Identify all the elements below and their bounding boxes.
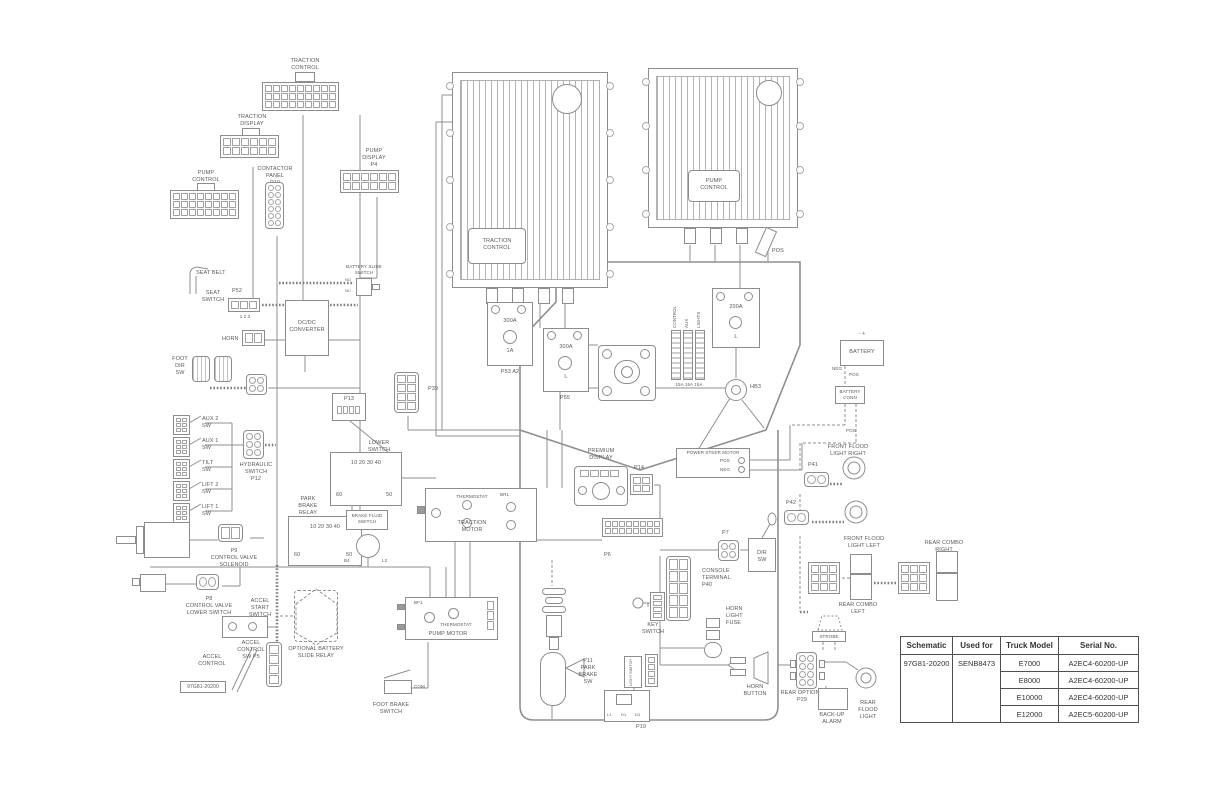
aux2-switch-label: AUX 2 SW (202, 416, 228, 430)
control-valve-solenoid-body (144, 522, 190, 558)
p39-connector (394, 372, 419, 413)
rear-combo-left-connector (808, 562, 840, 594)
horn-button-plug-1 (730, 657, 746, 664)
traction-motor-term-5 (506, 520, 516, 530)
p7-connector (718, 540, 739, 561)
col-schematic: Schematic (901, 637, 953, 655)
fuse200-center (729, 316, 742, 329)
battery-slide-no: NO (345, 277, 355, 282)
lower-relay-pins-top: 10 20 30 40 (334, 460, 398, 467)
p13-label: P13 (332, 396, 366, 403)
horn-fuse-cap-1 (706, 618, 720, 628)
dcdc-converter-label: DC/DC CONVERTER (287, 320, 327, 334)
traction-module-nameplate-text: TRACTION CONTROL (470, 238, 524, 252)
p1-tab (295, 72, 315, 82)
traction-motor-term-2 (462, 500, 472, 510)
horn-light-fuse-label: HORN LIGHT FUSE (726, 606, 752, 627)
rear-combo-left-lamp-top (850, 554, 872, 574)
tilt-switch-connector (173, 459, 190, 479)
col-truck-model: Truck Model (1001, 637, 1059, 655)
p19-l1: L1 (607, 712, 617, 717)
contactor-lug-3 (602, 386, 612, 396)
console-terminal-connector (666, 556, 691, 621)
p8-lower-switch-label: P8 CONTROL VALVE LOWER SWITCH (182, 596, 236, 617)
solenoid-stem (116, 536, 136, 544)
steer-pos-label: POS (720, 458, 734, 464)
rear-combo-right-lamp-bottom (936, 573, 958, 601)
pump-display-p4-connector (340, 170, 399, 193)
steer-pos-terminal (738, 457, 745, 464)
pump-module-nameplate-text: PUMP CONTROL (690, 178, 738, 192)
spec-table: Schematic Used for Truck Model Serial No… (900, 636, 1139, 723)
front-flood-left-label: FRONT FLOOD LIGHT LEFT (838, 536, 890, 550)
serial-1: A2EC4-60200-UP (1059, 655, 1139, 672)
traction-controller-cap (552, 84, 582, 114)
contactor-lug-2 (640, 349, 650, 359)
p8-connector (196, 574, 219, 590)
traction-left-mounts (446, 82, 454, 278)
pump-motor-term-2 (448, 608, 459, 619)
park-brake-insulator-2 (545, 597, 563, 604)
schematic-number: 97G81-20200 (901, 655, 953, 723)
lower-relay-pin50: 50 (386, 492, 398, 499)
park-brake-insulator-1 (542, 588, 566, 595)
light-switch-label: LIGHT SWITCH (629, 658, 633, 686)
lift2-switch-label: LIFT 2 SW (202, 482, 228, 496)
key-switch-label: KEY SWITCH (636, 622, 670, 636)
traction-motor-stub (417, 506, 425, 514)
p19-d2: D2 (635, 712, 645, 717)
rear-combo-right-lamp-top (936, 551, 958, 573)
p39-label: P39 (428, 386, 446, 393)
lift1-switch-connector (173, 503, 190, 523)
fuse1-lug-b (517, 305, 526, 314)
traction-display-p2-connector (220, 135, 279, 158)
battery-slide-nc: NC (345, 288, 355, 293)
pump-display-p4-label: PUMP DISPLAY P4 (350, 148, 398, 169)
brake-fluid-l2: L2 (382, 558, 394, 564)
pump-pos-label: POS (770, 248, 786, 255)
pump-controller-cap (756, 80, 782, 106)
fuse200-rating: 200A (712, 304, 760, 311)
fuse2-lug-a (547, 331, 556, 340)
console-terminal-label: CONSOLE TERMINAL P40 (702, 568, 742, 589)
aux-fuse-ratings: 15A 15A 15A (666, 382, 712, 388)
hydraulic-switch-connector (243, 430, 264, 459)
foot-dir-switch-label: FOOT DIR SW (168, 356, 192, 377)
accel-start-pin-a (228, 622, 237, 631)
serial-3: A2EC4-60200-UP (1059, 689, 1139, 706)
fuse2-id: L (543, 374, 589, 381)
park-brake-relay-label: PARK BRAKE RELAY (286, 496, 330, 517)
spec-header-row: Schematic Used for Truck Model Serial No… (901, 637, 1139, 655)
optional-battery-slide-relay (294, 590, 338, 642)
foot-brake-switch-label: FOOT BRAKE SWITCH (368, 702, 414, 716)
light-switch-connector (645, 654, 658, 687)
rear-combo-left-label: REAR COMBO LEFT (832, 602, 884, 616)
direction-switch-label: DIR SW (750, 550, 774, 564)
pump-right-mounts (796, 78, 804, 218)
fuse2-center (558, 356, 572, 370)
tilt-switch-label: TILT SW (202, 460, 228, 474)
foot-brake-com: COM (414, 684, 432, 690)
contactor-lug-4 (640, 386, 650, 396)
p19-label: P19 (636, 724, 652, 731)
p41-connector (804, 472, 829, 487)
traction-motor-label: TRACTION MOTOR (448, 520, 496, 534)
seat-belt-label: SEAT BELT (196, 270, 230, 277)
pump-lug-3 (736, 228, 748, 244)
steer-neg-terminal (738, 466, 745, 473)
aux2-switch-connector (173, 415, 190, 435)
fuse-lights-label: LIGHTS (696, 284, 701, 328)
bf1-label: BF1 (414, 600, 430, 606)
park-brake-tip (549, 637, 559, 650)
foot-dir-connector (246, 374, 267, 395)
hb3-stud-inner (731, 385, 741, 395)
p29-bump-l2 (790, 672, 796, 680)
p6-label: P6 (604, 552, 616, 559)
rear-combo-left-lamp-bottom (850, 574, 872, 600)
contactor-panel-p10-connector (265, 182, 284, 229)
battery-pos2-label: POS (846, 428, 860, 434)
pump-motor-strip (487, 601, 494, 630)
p41-label: P41 (808, 462, 826, 469)
hydraulic-switch-label: HYDRAULIC SWITCH P12 (238, 462, 274, 483)
spec-row: 97G81-20200 SENB8473 E7000 A2EC4-60200-U… (901, 655, 1139, 672)
park-brake-body (546, 615, 562, 637)
light-switch (624, 656, 642, 688)
optional-battery-slide-relay-label: OPTIONAL BATTERY SLIDE RELAY (288, 646, 344, 660)
traction-thermostat-label: THERMOSTAT (450, 494, 494, 500)
fuse2-pin: P55 (545, 395, 585, 402)
rear-combo-right-connector (898, 562, 930, 594)
battery-neg-label: NEG (832, 366, 846, 372)
horn-fuse-cap-2 (706, 630, 720, 640)
schematic-number-text: 97G81-20200 (180, 684, 226, 690)
p19-inner-box (616, 694, 632, 705)
seat-switch-label: SEAT SWITCH (198, 290, 228, 304)
p42-connector (784, 510, 809, 525)
premium-display-gauges (580, 470, 619, 477)
backup-alarm (818, 688, 848, 710)
fuse2-lug-b (573, 331, 582, 340)
fuse-aux-label: AUX (684, 284, 689, 328)
aux-fuse-1 (671, 330, 681, 380)
foot-brake-switch (384, 680, 412, 694)
pump-lug-2 (710, 228, 722, 244)
br1-label: BR1 (500, 492, 516, 498)
aux1-switch-connector (173, 437, 190, 457)
fuse-control-label: CONTROL (672, 284, 677, 328)
p14-label: P14 (634, 465, 650, 472)
horn-button-label: HORN BUTTON (738, 684, 772, 698)
premium-display-label: PREMIUM DISPLAY (576, 448, 626, 462)
p29-bump-r1 (819, 660, 825, 668)
battery-pos-label: POS (849, 372, 863, 378)
battery-slide-switch (356, 278, 372, 296)
p8-sensor-stem (132, 578, 140, 586)
p9-connector (218, 524, 243, 542)
backup-alarm-label: BACK-UP ALARM (810, 712, 854, 726)
accel-control-label: ACCEL CONTROL (192, 654, 232, 668)
p8-sensor (140, 574, 166, 592)
schematic-page: TRACTION CONTROL P1 TRACTION DISPLAY P2 … (0, 0, 1224, 792)
key-switch-connector (650, 592, 665, 621)
fuse200-lug-b (744, 292, 753, 301)
battery-connector-label: BATTERY CONN (835, 389, 865, 400)
traction-motor-term-1 (431, 508, 441, 518)
pump-motor-stub2 (397, 624, 405, 630)
lift2-switch-connector (173, 481, 190, 501)
park-brake-switch-capsule (540, 652, 566, 706)
horn-fuse-barrel (704, 642, 722, 658)
steer-neg-label: NEG (720, 467, 734, 473)
horn-button-plug-2 (730, 669, 746, 676)
brake-fluid-switch-label: BRAKE FLUID SWITCH (346, 513, 388, 524)
battery-terminals: - + (840, 331, 884, 338)
traction-lug-3 (538, 288, 550, 304)
horn-connector (242, 330, 265, 346)
p7-label: P7 (722, 530, 736, 537)
power-steer-motor-label: POWER STEER MOTOR (678, 450, 748, 456)
fuse2-rating: 300A (543, 344, 589, 351)
fuse1-rating: 300A (487, 318, 533, 325)
p52-label: P52 (232, 288, 248, 295)
fuse1-lug-a (491, 305, 500, 314)
foot-dir-pedal-left (192, 356, 210, 382)
premium-display-btn-r (616, 486, 625, 495)
accel-start-pin-b (248, 622, 257, 631)
contactor-coil-center (621, 366, 633, 378)
rear-flood-light-label: REAR FLOOD LIGHT (850, 700, 886, 721)
park-brake-switch-label: P11 PARK BRAKE SW (570, 658, 606, 686)
p42-label: P42 (786, 500, 804, 507)
brake-fluid-sensor (356, 534, 380, 558)
pump-thermostat-label: THERMOSTAT (434, 622, 478, 628)
traction-control-p1-connector (262, 82, 339, 111)
pump-left-mounts (642, 78, 650, 218)
used-for-value: SENB8473 (953, 655, 1001, 723)
foot-dir-pedal-right (214, 356, 232, 382)
pump-lug-1 (684, 228, 696, 244)
p6-connector (602, 518, 663, 537)
p29-bump-r2 (819, 672, 825, 680)
premium-display-dial (592, 482, 610, 500)
battery-label: BATTERY (842, 349, 882, 356)
horn-label: HORN (222, 336, 242, 343)
traction-motor-term-4 (506, 502, 516, 512)
accel-p5-label: ACCEL CONTROL SW P5 (236, 640, 266, 661)
aux-fuse-3 (695, 330, 705, 380)
traction-lug-4 (562, 288, 574, 304)
serial-4: A2EC5-60200-UP (1059, 706, 1139, 723)
truck-model-4: E12000 (1001, 706, 1059, 723)
aux1-switch-label: AUX 1 SW (202, 438, 228, 452)
fuse200-id: L (712, 334, 760, 341)
p13-pins (337, 406, 360, 414)
serial-2: A2EC4-60200-UP (1059, 672, 1139, 689)
fuse1-id: 1A (487, 348, 533, 355)
contactor-lug-1 (602, 349, 612, 359)
fuse200-lug-a (716, 292, 725, 301)
fuse1-pins: P53 A2 (485, 369, 535, 376)
solenoid-end-cap (136, 526, 144, 554)
pump-motor-stub1 (397, 604, 405, 610)
park-brake-insulator-3 (542, 606, 566, 613)
p19-d1: D1 (621, 712, 631, 717)
col-used-for: Used for (953, 637, 1001, 655)
fuse1-center (503, 330, 517, 344)
truck-model-3: E10000 (1001, 689, 1059, 706)
rear-options-p29-connector (796, 652, 817, 689)
p52-pin-numbers: 1 2 3 (226, 314, 264, 320)
truck-model-1: E7000 (1001, 655, 1059, 672)
aux-fuse-2 (683, 330, 693, 380)
battery-slide-switch-stub (372, 284, 380, 290)
traction-right-mounts (606, 82, 614, 278)
col-serial-no: Serial No. (1059, 637, 1139, 655)
p14-connector (630, 474, 653, 495)
p9-solenoid-label: P9 CONTROL VALVE SOLENOID (206, 548, 262, 569)
park-relay-pin60: 60 (294, 552, 306, 559)
strobe-label: STROBE (812, 634, 846, 640)
accel-p5-connector (266, 642, 282, 687)
seat-switch-p52-connector (228, 298, 260, 312)
premium-display-btn-l (578, 486, 587, 495)
brake-fluid-b4: B4 (344, 558, 356, 564)
lift1-switch-label: LIFT 1 SW (202, 504, 228, 518)
pump-motor-label: PUMP MOTOR (420, 631, 476, 638)
truck-model-2: E8000 (1001, 672, 1059, 689)
pump-control-p3-connector (170, 190, 239, 219)
lower-relay-pin60: 60 (336, 492, 348, 499)
hb3-label: HB3 (750, 384, 768, 391)
p29-bump-l1 (790, 660, 796, 668)
battery-slide-switch-label: BATTERY SLIDE SWITCH (340, 264, 388, 275)
front-flood-right-label: FRONT FLOOD LIGHT RIGHT (822, 444, 874, 458)
